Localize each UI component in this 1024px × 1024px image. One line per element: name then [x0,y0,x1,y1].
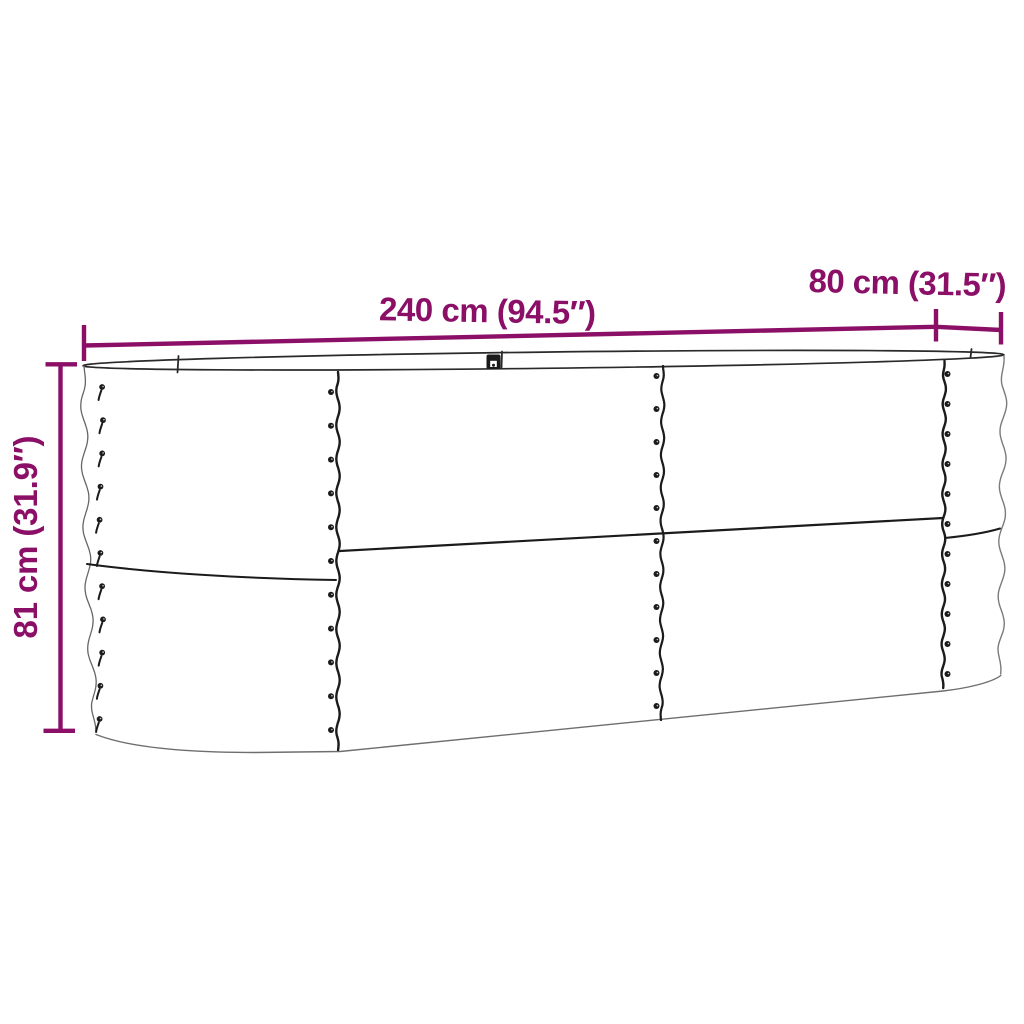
svg-text:81 cm (31.9″): 81 cm (31.9″) [7,436,44,639]
svg-text:240 cm (94.5″): 240 cm (94.5″) [379,290,597,331]
svg-text:80 cm (31.5″): 80 cm (31.5″) [808,262,1007,303]
